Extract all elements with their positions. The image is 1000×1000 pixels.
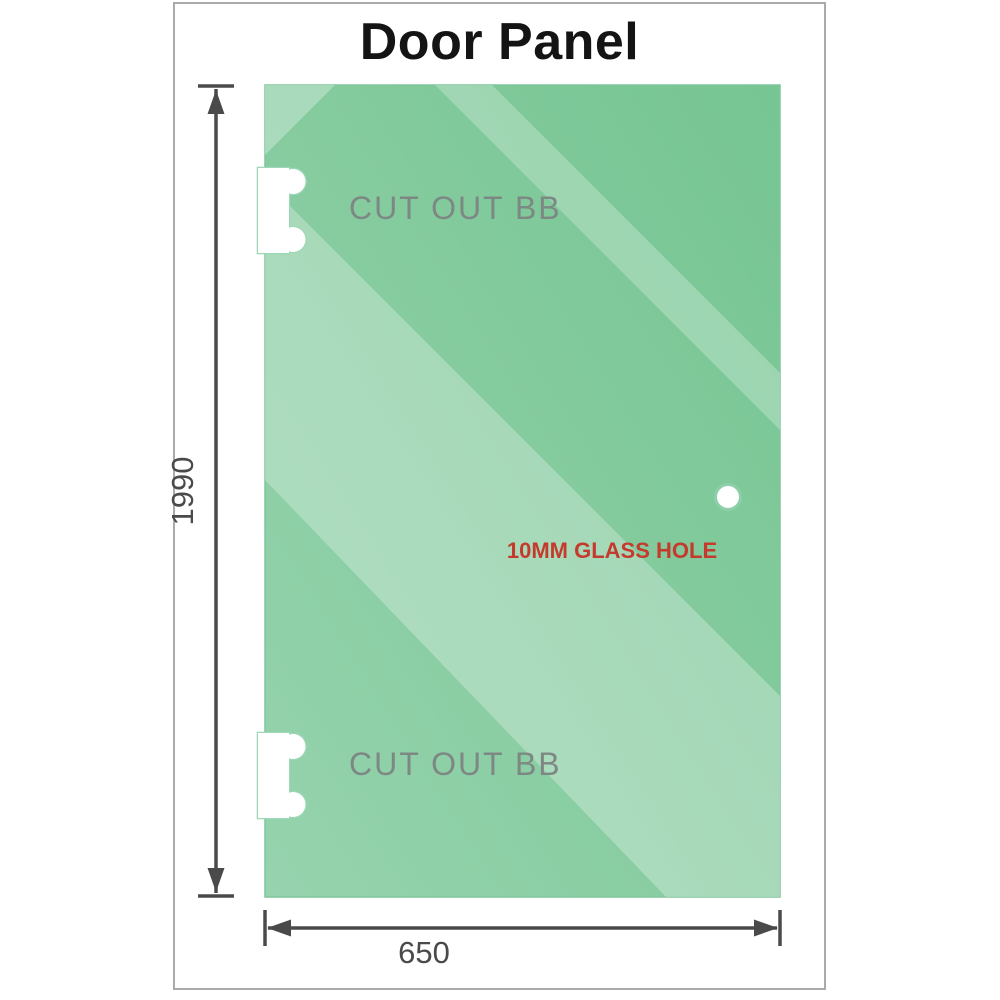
- height-dimension: [198, 86, 234, 896]
- height-dimension-label: 1990: [165, 457, 200, 526]
- arrow-left-icon: [267, 920, 291, 937]
- diagram-canvas: Door Panel: [0, 0, 1000, 1000]
- width-dimension-label: 650: [398, 935, 450, 970]
- arrow-down-icon: [208, 868, 225, 892]
- cutout-top-label: CUT OUT BB: [349, 190, 562, 226]
- arrow-right-icon: [754, 920, 778, 937]
- glass-hole: [716, 485, 741, 510]
- door-panel-drawing: CUT OUT BB CUT OUT BB 10MM GLASS HOLE 19…: [0, 0, 1000, 1000]
- arrow-up-icon: [208, 90, 225, 114]
- glass-hole-label: 10MM GLASS HOLE: [507, 538, 717, 563]
- width-dimension: [265, 910, 780, 946]
- cutout-bottom-label: CUT OUT BB: [349, 746, 562, 782]
